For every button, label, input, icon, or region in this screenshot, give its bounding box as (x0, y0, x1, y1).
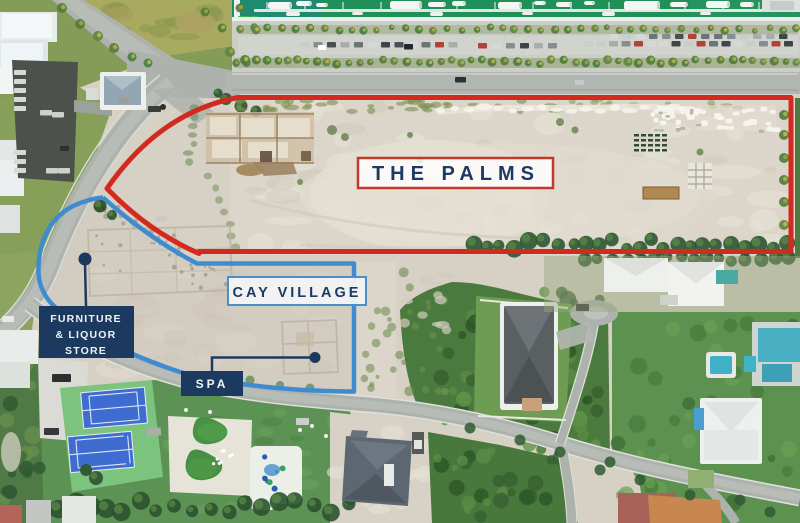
svg-text:FURNITURE: FURNITURE (50, 313, 121, 325)
svg-text:CAY VILLAGE: CAY VILLAGE (233, 285, 362, 301)
svg-text:& LIQUOR: & LIQUOR (56, 329, 117, 341)
svg-text:STORE: STORE (65, 345, 107, 357)
svg-text:SPA: SPA (196, 377, 229, 391)
svg-text:THE PALMS: THE PALMS (372, 163, 540, 185)
